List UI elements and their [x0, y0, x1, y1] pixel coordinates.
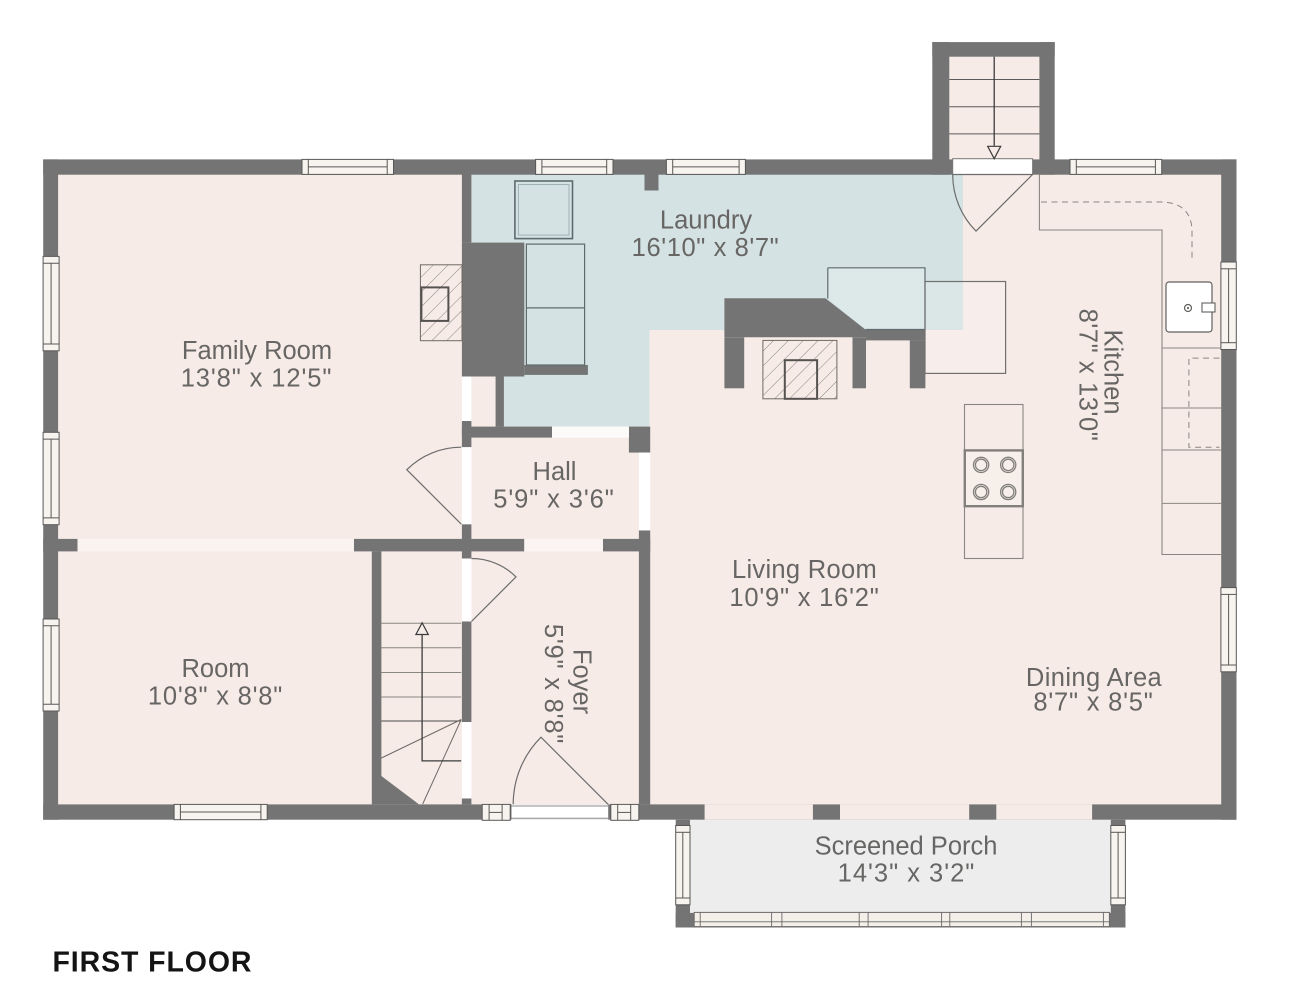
- svg-text:Living Room: Living Room: [732, 556, 877, 584]
- svg-text:Hall: Hall: [533, 458, 577, 486]
- svg-text:16'10" x 8'7": 16'10" x 8'7": [632, 234, 780, 262]
- svg-text:13'8" x 12'5": 13'8" x 12'5": [181, 365, 333, 393]
- svg-text:Laundry: Laundry: [660, 207, 752, 235]
- svg-text:10'8" x 8'8": 10'8" x 8'8": [148, 683, 283, 711]
- svg-text:14'3" x 3'2": 14'3" x 3'2": [838, 860, 976, 888]
- svg-text:8'7" x 13'0": 8'7" x 13'0": [1074, 309, 1102, 442]
- svg-text:Kitchen: Kitchen: [1099, 329, 1127, 414]
- svg-text:5'9" x 8'8": 5'9" x 8'8": [539, 624, 567, 744]
- svg-text:FIRST FLOOR: FIRST FLOOR: [53, 947, 253, 979]
- svg-text:10'9" x 16'2": 10'9" x 16'2": [729, 584, 879, 612]
- svg-text:Screened Porch: Screened Porch: [815, 833, 998, 861]
- svg-text:Foyer: Foyer: [568, 649, 596, 715]
- svg-text:8'7" x 8'5": 8'7" x 8'5": [1033, 689, 1153, 717]
- svg-text:5'9" x 3'6": 5'9" x 3'6": [493, 486, 614, 514]
- svg-text:Family Room: Family Room: [182, 337, 332, 365]
- svg-text:Room: Room: [181, 655, 249, 683]
